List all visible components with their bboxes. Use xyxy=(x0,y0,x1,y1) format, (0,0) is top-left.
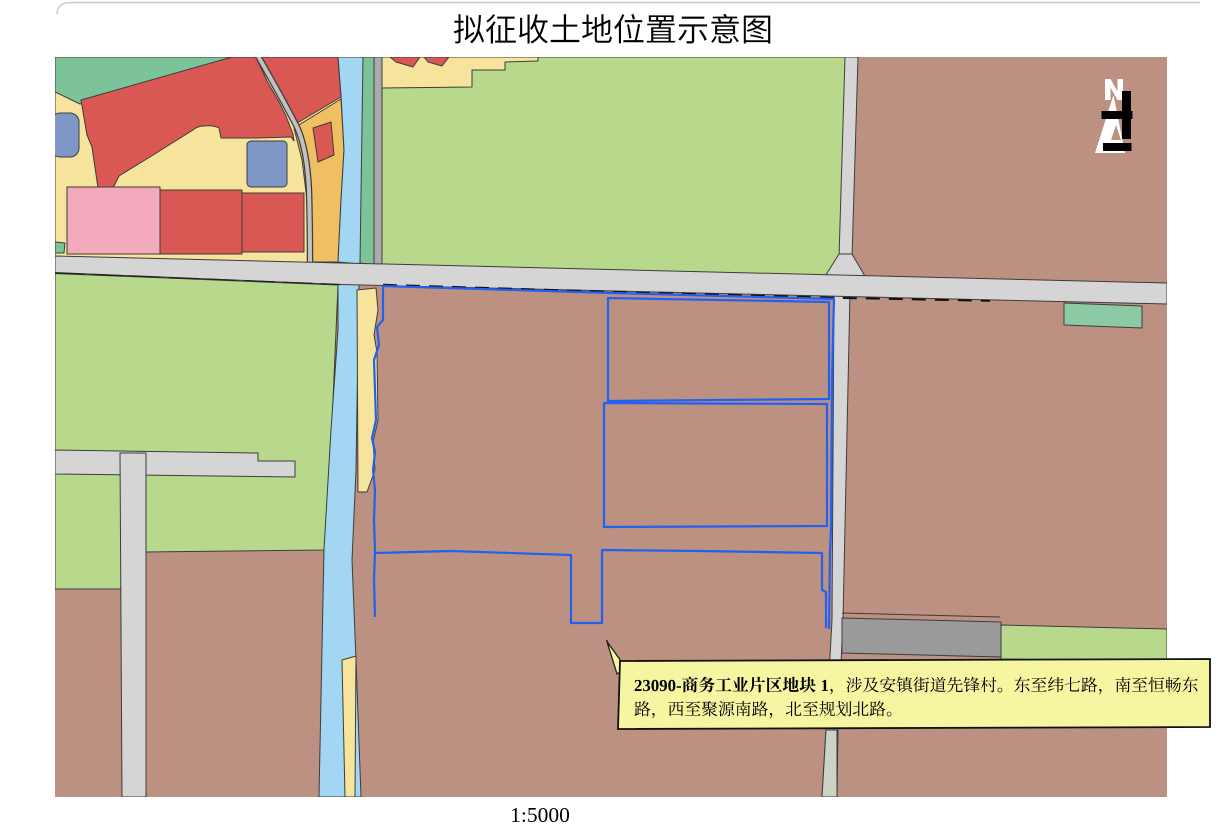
svg-text:1:5000: 1:5000 xyxy=(510,803,570,827)
